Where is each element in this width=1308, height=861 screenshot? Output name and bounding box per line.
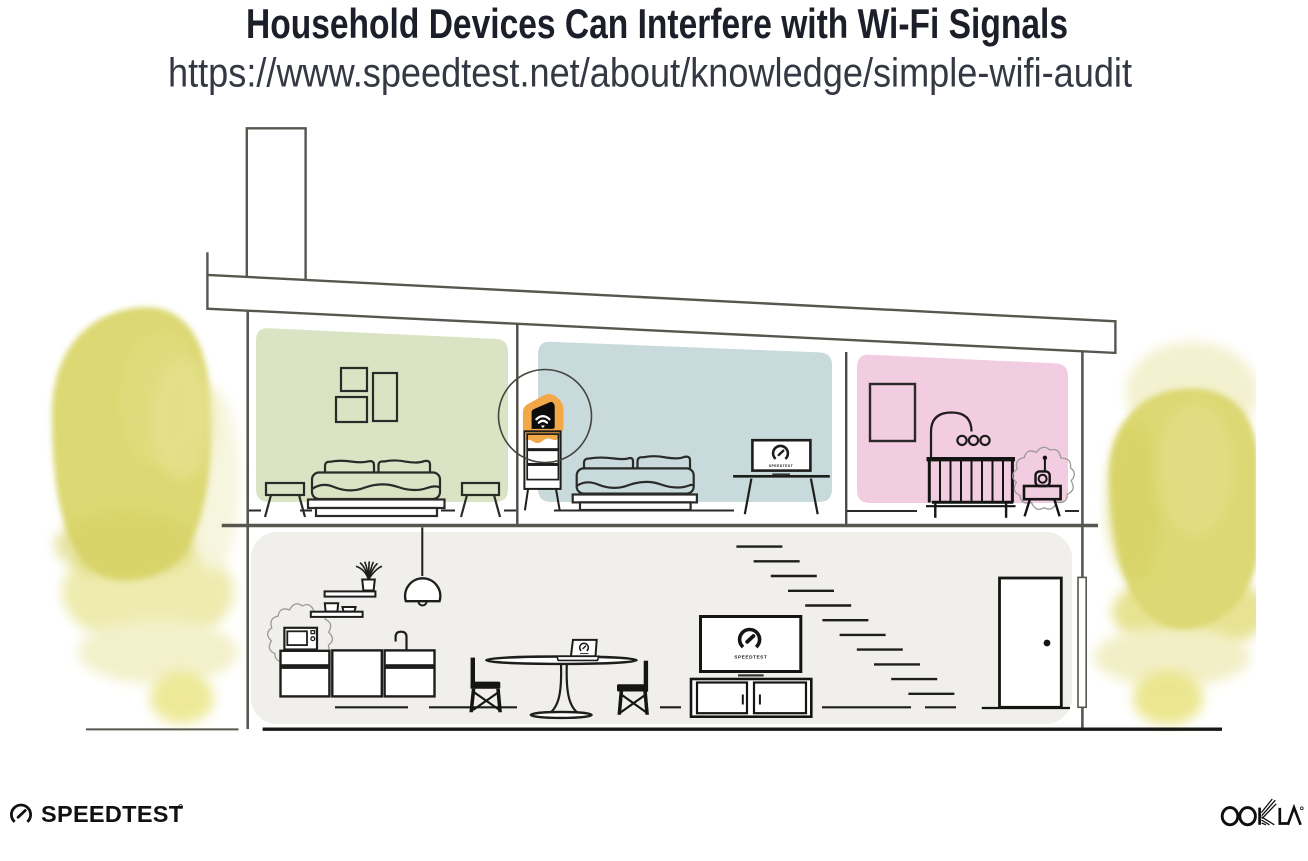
svg-text:SPEEDTEST: SPEEDTEST <box>41 801 184 827</box>
svg-text:https://www.speedtest.net/abou: https://www.speedtest.net/about/knowledg… <box>168 50 1133 96</box>
svg-text:Household Devices Can Interfer: Household Devices Can Interfere with Wi-… <box>246 0 1068 47</box>
svg-text:SPEEDTEST: SPEEDTEST <box>769 464 794 468</box>
svg-text:SPEEDTEST: SPEEDTEST <box>734 655 767 661</box>
